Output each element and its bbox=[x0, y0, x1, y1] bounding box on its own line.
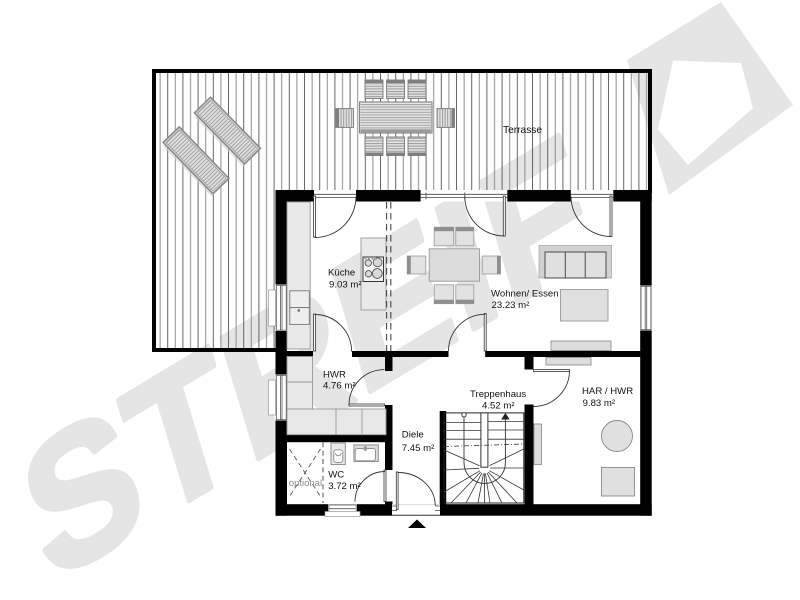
svg-text:Diele: Diele bbox=[402, 430, 424, 441]
svg-text:4.52 m²: 4.52 m² bbox=[482, 401, 515, 412]
svg-text:9.03 m²: 9.03 m² bbox=[329, 280, 362, 291]
svg-text:Treppenhaus: Treppenhaus bbox=[470, 389, 526, 400]
svg-text:HWR: HWR bbox=[323, 370, 346, 381]
svg-text:optional: optional bbox=[289, 478, 322, 489]
svg-text:WC: WC bbox=[328, 470, 344, 481]
svg-text:9.83 m²: 9.83 m² bbox=[583, 398, 616, 409]
svg-text:Küche: Küche bbox=[328, 268, 355, 279]
svg-text:7.45 m²: 7.45 m² bbox=[402, 443, 435, 454]
svg-text:Terrasse: Terrasse bbox=[503, 125, 542, 136]
svg-text:HAR / HWR: HAR / HWR bbox=[582, 386, 633, 397]
svg-text:4.76 m²: 4.76 m² bbox=[323, 381, 356, 392]
svg-text:23.23 m²: 23.23 m² bbox=[492, 300, 531, 311]
svg-text:Wohnen/ Essen: Wohnen/ Essen bbox=[491, 289, 559, 300]
svg-text:3.72 m²: 3.72 m² bbox=[328, 481, 361, 492]
